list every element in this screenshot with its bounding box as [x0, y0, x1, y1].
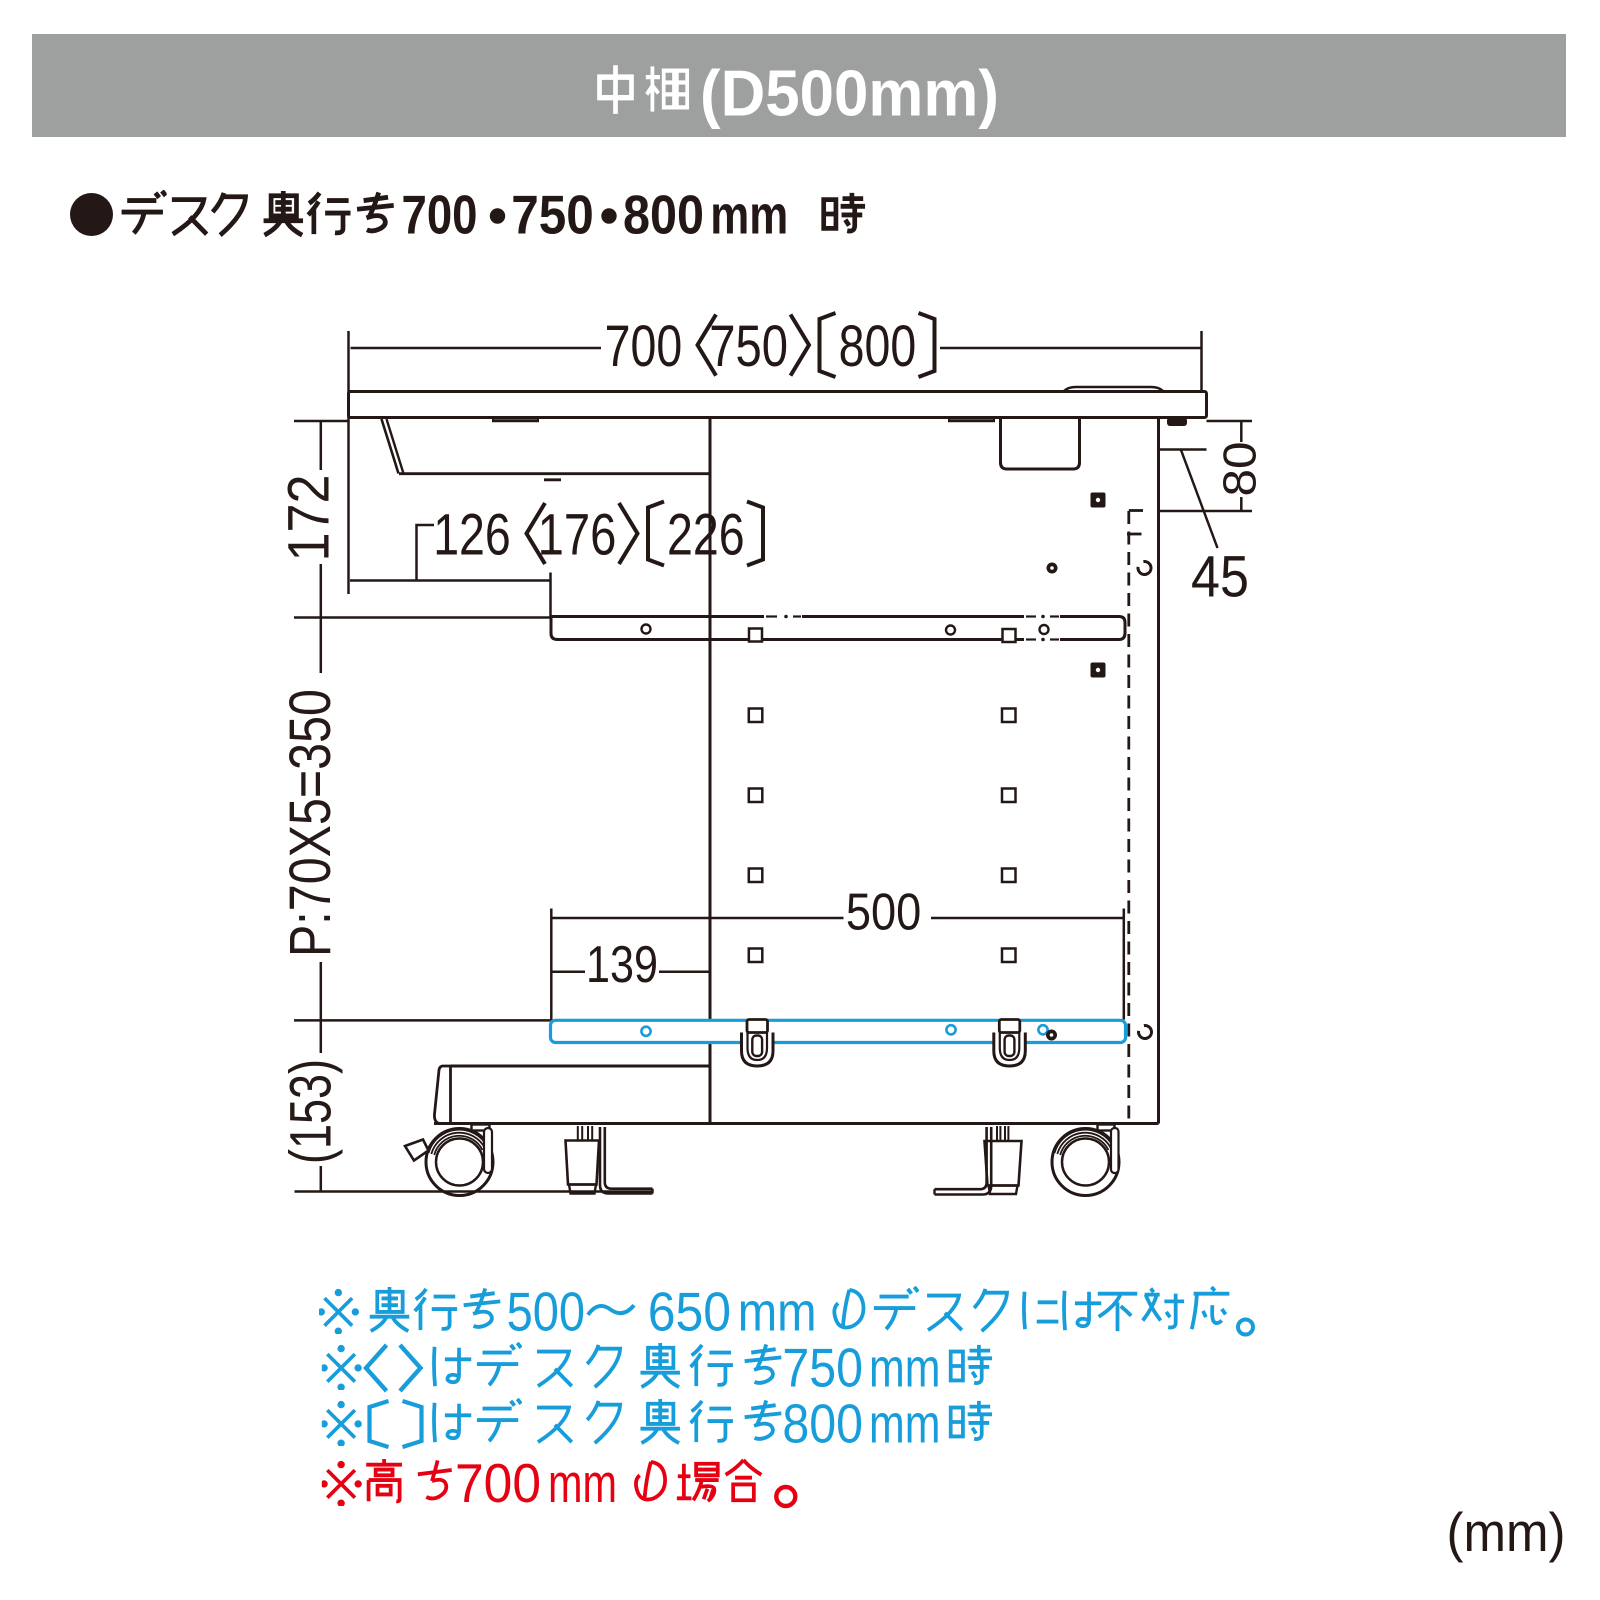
svg-text:226: 226	[667, 503, 745, 568]
svg-text:750: 750	[709, 314, 788, 379]
svg-text:500: 500	[507, 1281, 585, 1343]
svg-text:45: 45	[1191, 545, 1249, 610]
svg-text:700: 700	[605, 314, 683, 379]
svg-text:P:70X5=350: P:70X5=350	[278, 689, 343, 957]
svg-text:800: 800	[623, 184, 704, 246]
svg-text:750: 750	[782, 1337, 863, 1399]
svg-text:(mm): (mm)	[1447, 1501, 1566, 1563]
svg-text:500: 500	[846, 884, 921, 942]
svg-text:(D500mm): (D500mm)	[700, 57, 999, 130]
svg-text:750: 750	[511, 184, 594, 246]
svg-text:80: 80	[1214, 442, 1266, 497]
svg-text:126: 126	[433, 503, 511, 568]
svg-text:650: 650	[648, 1281, 731, 1343]
svg-text:mm: mm	[869, 1337, 940, 1399]
svg-text:139: 139	[586, 936, 658, 994]
svg-text:700: 700	[402, 184, 478, 246]
svg-text:mm: mm	[869, 1393, 940, 1455]
svg-text:700: 700	[455, 1452, 541, 1514]
svg-text:mm: mm	[738, 1281, 817, 1343]
svg-text:800: 800	[839, 314, 917, 379]
svg-text:mm: mm	[710, 184, 788, 246]
svg-text:800: 800	[782, 1393, 863, 1455]
svg-text:mm: mm	[548, 1452, 617, 1514]
svg-text:(153): (153)	[279, 1059, 344, 1164]
svg-text:176: 176	[538, 503, 617, 568]
svg-text:172: 172	[277, 475, 342, 562]
